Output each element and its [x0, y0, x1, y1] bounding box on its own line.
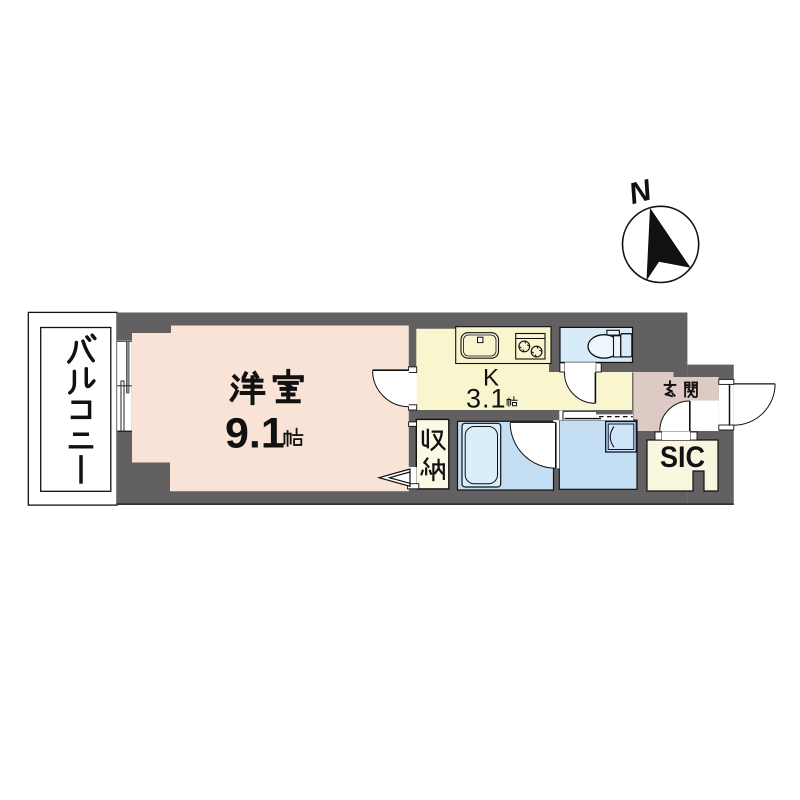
- svg-text:SIC: SIC: [660, 441, 705, 474]
- svg-text:9.1: 9.1: [225, 410, 285, 458]
- svg-text:3.1: 3.1: [466, 384, 507, 414]
